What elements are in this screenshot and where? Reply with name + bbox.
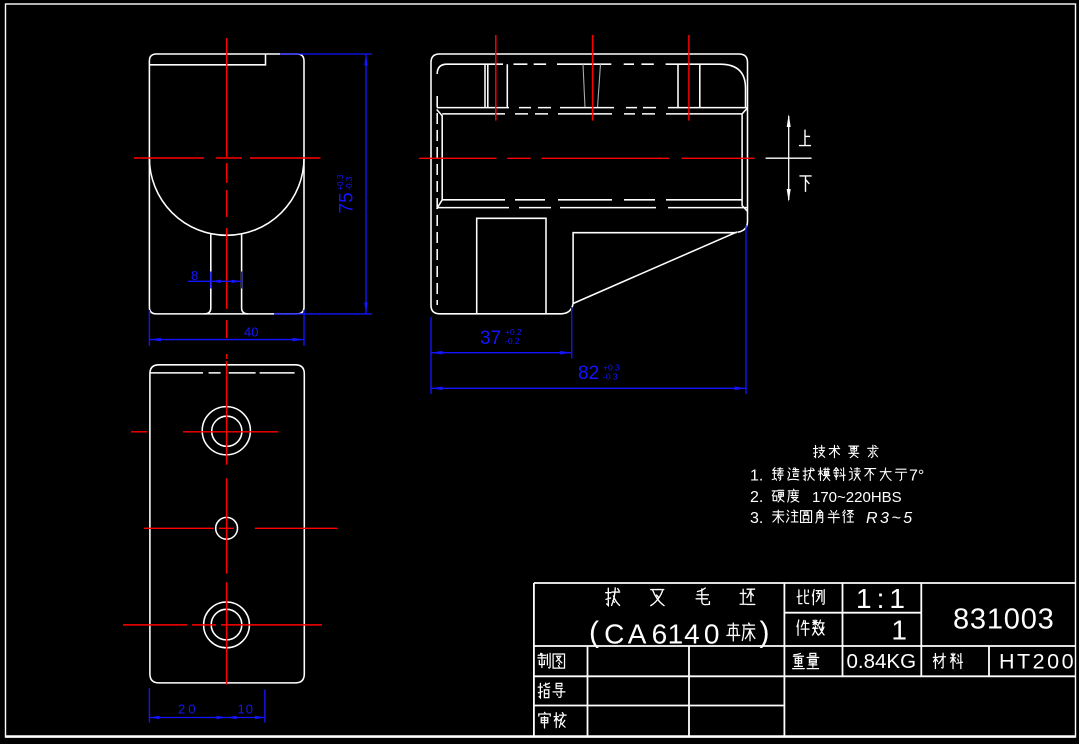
svg-text:4: 4 (684, 619, 700, 650)
svg-text:75: 75 (337, 192, 358, 213)
svg-text:): ) (760, 616, 770, 649)
svg-text:R3~5: R3~5 (866, 510, 915, 527)
svg-text:3.: 3. (750, 510, 763, 527)
svg-text:1: 1 (891, 615, 907, 646)
svg-text:8: 8 (191, 268, 198, 283)
svg-text:-0.2: -0.2 (505, 336, 520, 346)
svg-text:831003: 831003 (953, 604, 1055, 636)
svg-text:A: A (628, 619, 647, 650)
svg-text:6: 6 (652, 619, 668, 650)
svg-text:37: 37 (480, 328, 501, 349)
svg-text:1.: 1. (750, 468, 763, 485)
svg-text:1: 1 (668, 619, 684, 650)
svg-text:7°: 7° (909, 468, 924, 485)
svg-text:(: ( (589, 616, 599, 649)
svg-text:0.84KG: 0.84KG (847, 650, 917, 673)
svg-text:HT200: HT200 (999, 650, 1076, 674)
svg-text:C: C (604, 619, 624, 650)
svg-text:-0.3: -0.3 (345, 176, 354, 190)
svg-text:+0.3: +0.3 (336, 174, 345, 190)
svg-text:20: 20 (178, 702, 198, 717)
svg-text:-0.3: -0.3 (603, 372, 618, 382)
svg-text:170~220HBS: 170~220HBS (812, 489, 902, 506)
svg-text:2.: 2. (750, 489, 763, 506)
svg-text:40: 40 (244, 324, 258, 339)
svg-text:1:1: 1:1 (856, 583, 910, 614)
svg-text:10: 10 (238, 702, 254, 717)
svg-text:82: 82 (578, 363, 599, 384)
svg-text:0: 0 (704, 619, 720, 650)
